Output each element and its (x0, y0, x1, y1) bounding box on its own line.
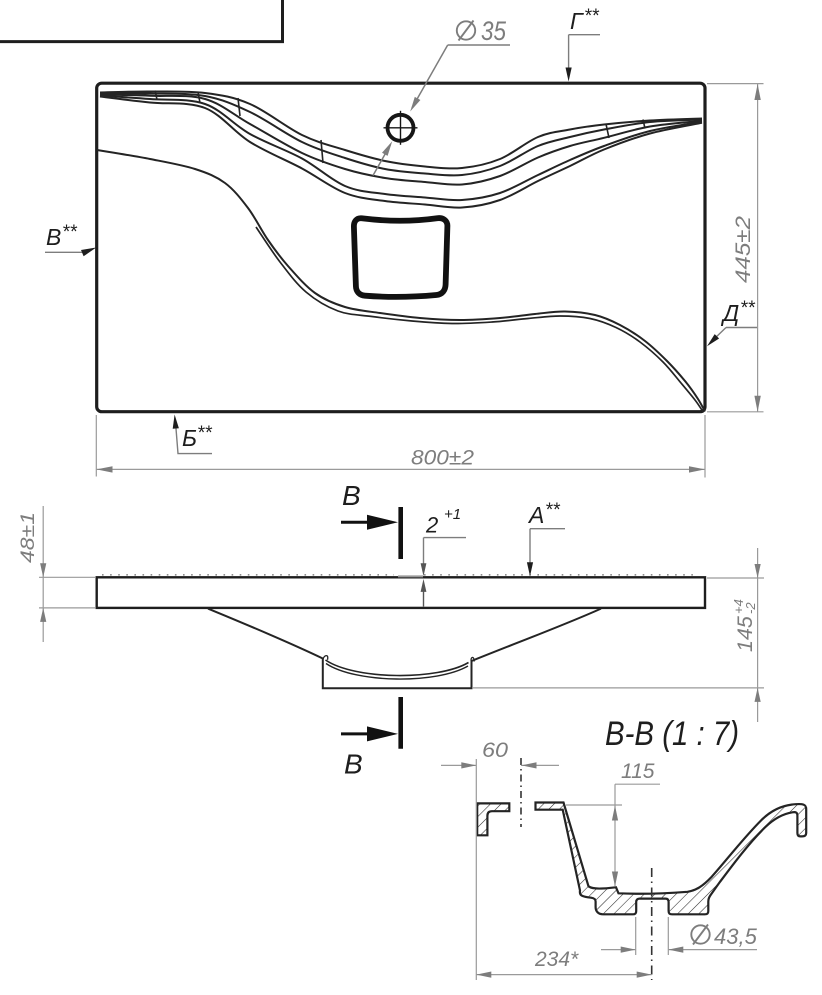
svg-text:**: ** (545, 500, 560, 521)
svg-text:115: 115 (621, 760, 655, 783)
svg-text:**: ** (197, 423, 212, 444)
svg-text:В: В (342, 480, 361, 511)
svg-text:48±1: 48±1 (17, 512, 39, 563)
svg-text:В: В (46, 224, 61, 250)
svg-text:А: А (527, 502, 544, 528)
svg-text:2: 2 (425, 513, 438, 538)
svg-text:**: ** (584, 6, 599, 27)
svg-text:В: В (344, 749, 363, 780)
svg-text:**: ** (740, 298, 755, 319)
svg-text:Д: Д (720, 300, 739, 326)
svg-text:43,5: 43,5 (714, 924, 758, 949)
svg-text:800±2: 800±2 (411, 446, 474, 470)
svg-text:+1: +1 (444, 506, 461, 523)
svg-text:145: 145 (733, 615, 757, 652)
svg-text:Б: Б (182, 425, 197, 451)
svg-text:В-В (1 : 7): В-В (1 : 7) (605, 715, 739, 753)
svg-text:234*: 234* (534, 948, 579, 971)
svg-text:Г: Г (570, 8, 584, 34)
svg-text:445±2: 445±2 (731, 216, 755, 283)
svg-text:-2: -2 (743, 602, 758, 614)
svg-text:35: 35 (481, 16, 507, 46)
svg-text:60: 60 (482, 739, 508, 762)
svg-text:**: ** (62, 222, 77, 243)
